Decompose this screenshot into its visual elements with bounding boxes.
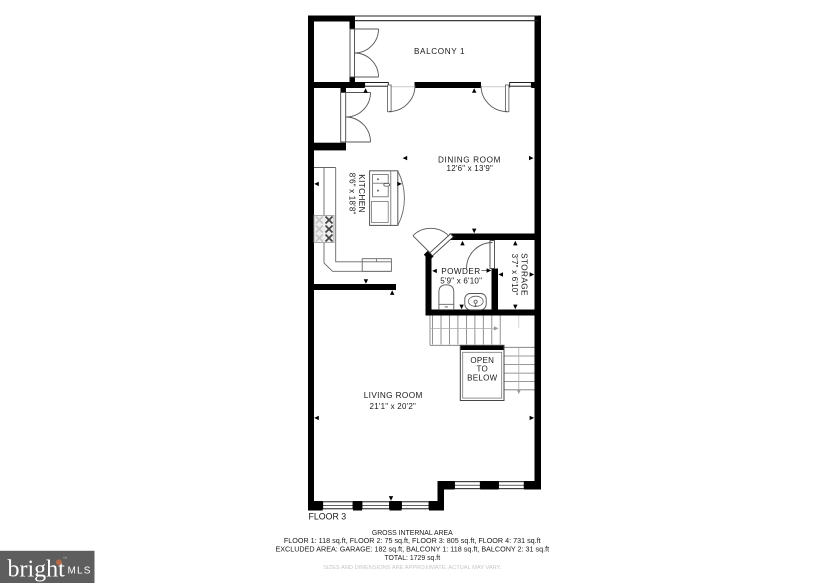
svg-text:BALCONY 1: BALCONY 1	[414, 47, 465, 56]
svg-text:bright: bright	[8, 557, 66, 583]
svg-text:STORAGE: STORAGE	[519, 253, 528, 296]
svg-text:5'9" x 6'10": 5'9" x 6'10"	[440, 276, 482, 285]
svg-text:POWDER: POWDER	[441, 267, 480, 276]
svg-text:LIVING ROOM: LIVING ROOM	[364, 391, 423, 400]
svg-text:BELOW: BELOW	[467, 374, 498, 383]
svg-text:FLOOR 3: FLOOR 3	[309, 511, 347, 521]
svg-text:SIZES AND DIMENSIONS ARE APPRO: SIZES AND DIMENSIONS ARE APPROXIMATE, AC…	[323, 565, 501, 571]
svg-text:TOTAL: 1729 sq.ft: TOTAL: 1729 sq.ft	[384, 555, 440, 562]
svg-text:TO: TO	[477, 365, 489, 374]
svg-text:MLS: MLS	[68, 566, 92, 577]
svg-text:EXCLUDED AREA: GARAGE: 182 sq.: EXCLUDED AREA: GARAGE: 182 sq.ft, BALCON…	[275, 545, 549, 554]
svg-text:KITCHEN: KITCHEN	[357, 174, 366, 213]
svg-text:3'7" x 6'10": 3'7" x 6'10"	[510, 254, 519, 296]
svg-text:™: ™	[63, 556, 68, 561]
svg-text:12'6" x 13'9": 12'6" x 13'9"	[447, 164, 493, 173]
svg-text:8'6" x 18'8": 8'6" x 18'8"	[348, 173, 357, 215]
svg-text:21'1" x 20'2": 21'1" x 20'2"	[370, 402, 416, 411]
